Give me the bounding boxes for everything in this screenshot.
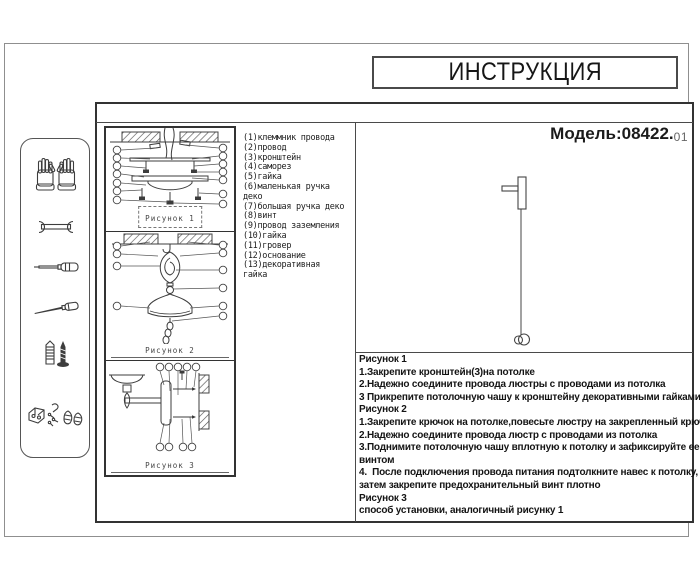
figure-2-label: Рисунок 2 (111, 346, 229, 355)
figure-1-label-box: Рисунок 1 (138, 206, 202, 228)
divider-top (96, 122, 693, 123)
model-label: Модель: (550, 124, 621, 143)
gloves-icon (21, 155, 91, 193)
model-line: Модель:08422.01 (360, 124, 688, 144)
instruction-line: 1.Закрепите крючок на потолке,повесьте л… (359, 417, 693, 430)
awl-icon (21, 297, 91, 317)
tools-panel (20, 138, 90, 458)
parts-list: (1)клеммник провода(2)провод(3)кронштейн… (243, 134, 355, 281)
figure-3-label: Рисунок 3 (111, 461, 229, 470)
instruction-line: Рисунок 2 (359, 404, 693, 417)
instruction-line: способ установки, аналогичный рисунку 1 (359, 505, 693, 518)
instruction-line: 4. После подключения провода питания под… (359, 467, 693, 480)
figure-2-label-box: Рисунок 2 (111, 346, 229, 358)
instruction-sheet: ИНСТРУКЦИЯ Модель:08422.01 (0, 0, 700, 583)
lamp-drawing (450, 146, 590, 352)
instruction-line: 3 Прикрепите потолочную чашу к кронштейн… (359, 392, 693, 405)
figure-3-label-box: Рисунок 3 (111, 461, 229, 473)
divider-vertical (355, 122, 356, 522)
figure-2-art (106, 232, 234, 344)
figure-1: Рисунок 1 (106, 128, 234, 232)
instruction-line: Рисунок 1 (359, 354, 693, 367)
instruction-line: 1.Закрепите кронштейн(3)на потолке (359, 367, 693, 380)
parts-list-line: гайка (243, 271, 355, 281)
figure-3: Рисунок 3 (106, 361, 234, 475)
installation-instructions: Рисунок 11.Закрепите кронштейн(3)на пото… (359, 354, 693, 518)
figure-3-art (106, 361, 234, 455)
model-variant: 01 (674, 130, 688, 144)
divider-middle (356, 352, 693, 353)
figure-1-label: Рисунок 1 (145, 214, 195, 223)
flat-screwdriver-icon (21, 261, 91, 273)
title-box: ИНСТРУКЦИЯ (372, 56, 678, 89)
instruction-line: винтом (359, 455, 693, 468)
instruction-line: 2.Надежно соедините провода люстр с пров… (359, 430, 693, 443)
fasteners-icon (21, 401, 91, 429)
page-title: ИНСТРУКЦИЯ (448, 58, 602, 87)
instruction-line: затем закрепите предохранительный винт п… (359, 480, 693, 493)
model-number: 08422. (622, 124, 674, 143)
figure-1-art (106, 128, 234, 210)
figures-box: Рисунок 1 (104, 126, 236, 477)
instruction-line: 2.Надежно соедините провода люстры с про… (359, 379, 693, 392)
instruction-line: Рисунок 3 (359, 493, 693, 506)
wrench-icon (21, 219, 91, 235)
figure-2: Рисунок 2 (106, 232, 234, 361)
anchor-screw-icon (21, 339, 91, 371)
instruction-line: 3.Поднимите потолочную чашу вплотную к п… (359, 442, 693, 455)
